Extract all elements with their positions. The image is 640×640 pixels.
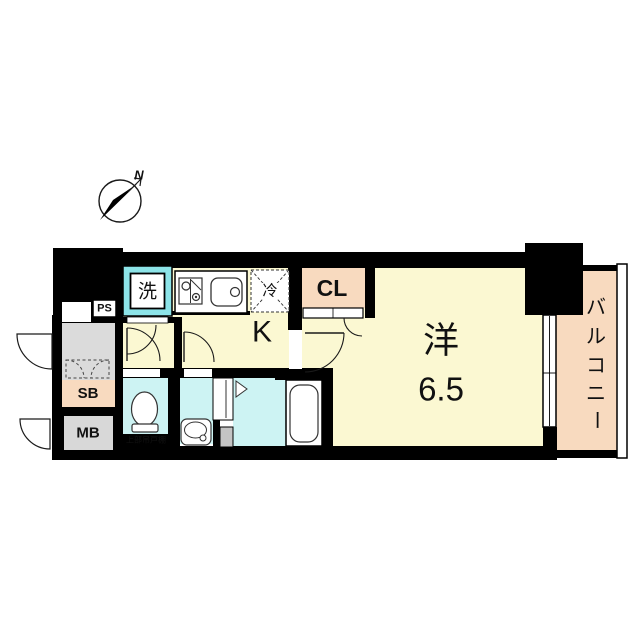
- toilet-icon: [132, 392, 159, 432]
- room-doorway-gap: [289, 330, 302, 369]
- balcony-label: バ ル コ ニ ー: [585, 297, 607, 430]
- kitchen-sink-icon: [211, 278, 242, 306]
- balcony-char-2: ル: [586, 326, 606, 348]
- meter-box-label: MB: [76, 425, 99, 442]
- shoe-box-label: SB: [78, 385, 99, 402]
- washbasin-icon: [181, 419, 211, 445]
- compass-north-label: N: [134, 168, 144, 183]
- shaft-notch: [62, 302, 91, 322]
- western-room-label: 洋: [423, 320, 459, 361]
- balcony-char-1: バ: [586, 297, 606, 319]
- washbasin-doorway-gap: [184, 369, 212, 377]
- washing-machine-label: 洗: [138, 281, 157, 303]
- balcony-char-4: ニ: [586, 383, 606, 405]
- kitchen-label: K: [252, 316, 272, 349]
- wall-kitchen-closet: [288, 268, 302, 330]
- stove-icon: [179, 278, 202, 304]
- wall-balcony-bottom: [557, 450, 619, 458]
- fixture-box: [220, 427, 233, 447]
- floor-plan-svg: N: [0, 0, 640, 640]
- wall-top: [123, 252, 525, 268]
- wall-top-right-block: [525, 243, 583, 315]
- toilet-doorway-gap: [123, 369, 160, 377]
- upper-cabinet-note: 上部吊戸棚: [126, 435, 166, 445]
- wall-entrance-right: [115, 322, 123, 446]
- sliding-window-icon: [543, 315, 556, 427]
- wall-washbasin-bath-lower: [213, 420, 220, 446]
- compass-circle: [99, 180, 141, 222]
- wall-sb-mb-divider: [62, 407, 115, 415]
- wall-corridor-divider: [174, 317, 182, 374]
- western-room-size-label: 6.5: [418, 371, 464, 408]
- wall-bottom: [115, 446, 557, 460]
- bathtub-icon: [286, 380, 322, 446]
- wall-right-lower: [543, 427, 557, 452]
- balcony-rail: [617, 264, 627, 458]
- pipe-space-label: PS: [97, 303, 112, 315]
- wall-balcony-top: [583, 265, 619, 271]
- floor-plan-page: N: [0, 0, 640, 640]
- balcony-char-3: コ: [586, 355, 606, 377]
- refrigerator-label: 冷: [262, 283, 277, 300]
- wall-closet-right: [365, 264, 375, 318]
- closet-label: CL: [317, 275, 348, 301]
- entrance-floor: [62, 322, 115, 380]
- wall-left: [52, 315, 62, 460]
- washer-door-strip: [127, 317, 168, 323]
- balcony-floor-left: [556, 313, 583, 455]
- balcony-char-5: ー: [585, 410, 607, 430]
